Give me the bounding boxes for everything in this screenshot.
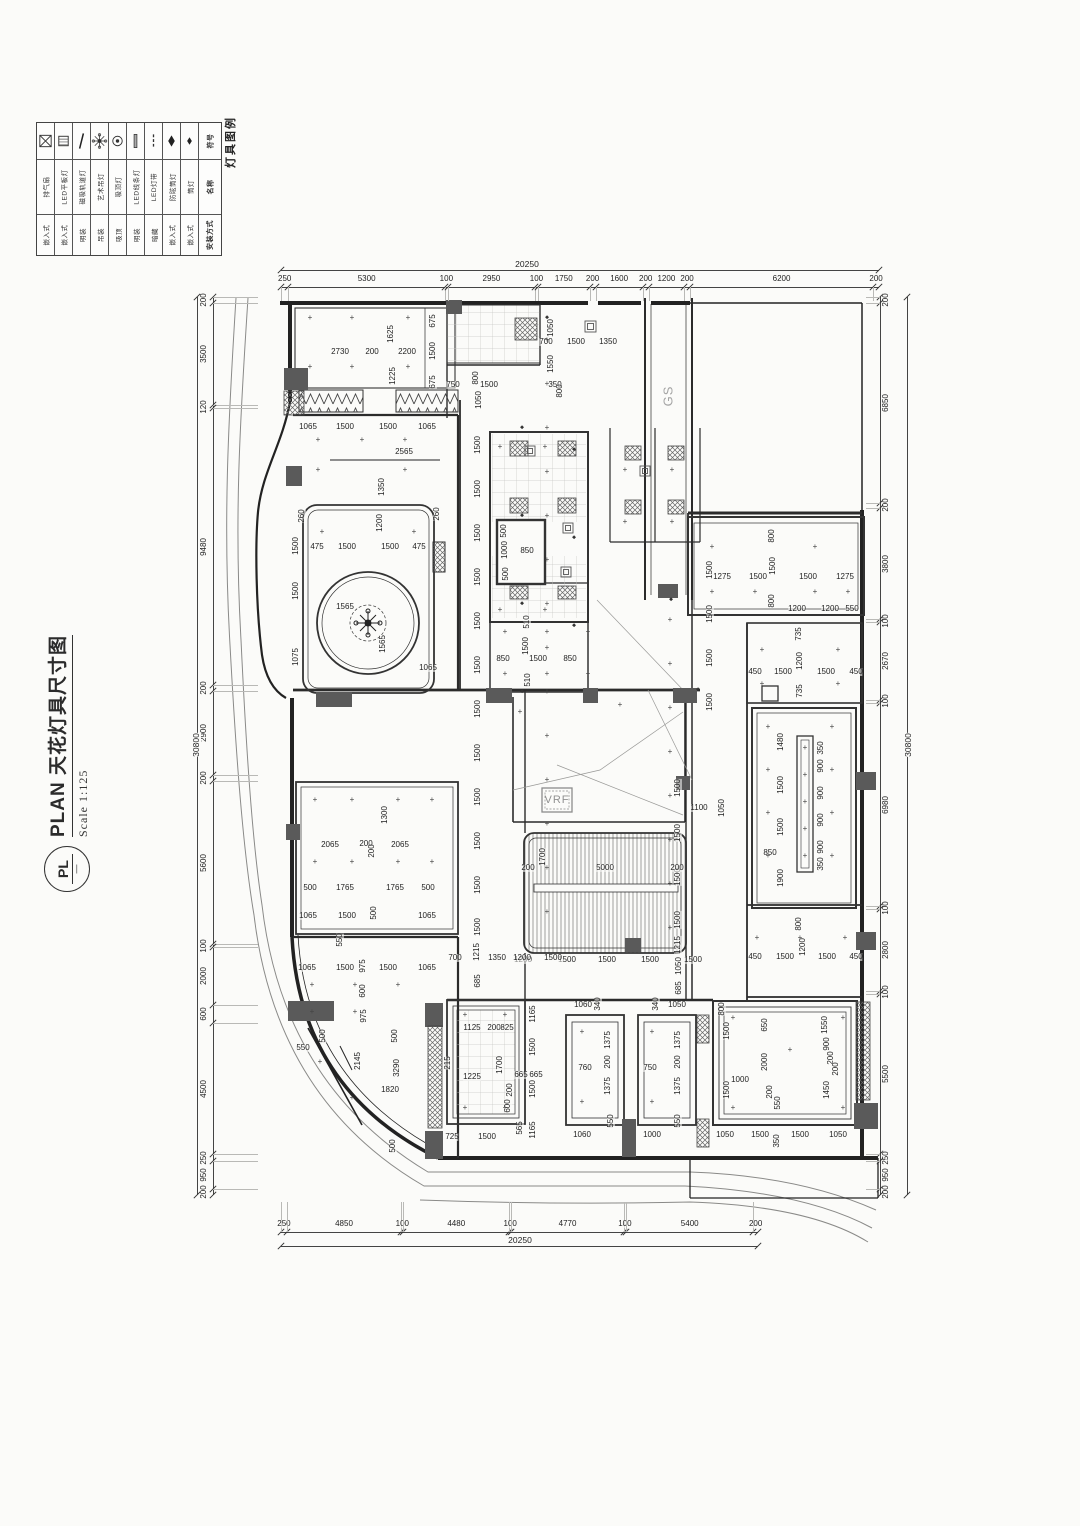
legend-item-name: 艺术吊灯 — [91, 160, 108, 215]
legend-item-install: 暗藏 — [145, 215, 162, 255]
drawing-sheet: 排气扇嵌入式LED平板灯嵌入式磁吸轨道灯明装艺术吊灯吊装吸顶灯吸顶LED线条灯明… — [0, 0, 1080, 1526]
legend-item-install: 吊装 — [91, 215, 108, 255]
title-block: PL — PLAN 天花灯具尺寸图 Scale 1:125 — [38, 624, 96, 892]
led-strip-icon — [145, 123, 162, 160]
structural-columns — [284, 300, 878, 1159]
ceiling-lamp-icon — [109, 123, 126, 160]
legend-item: LED平板灯嵌入式 — [55, 123, 73, 255]
downlight-icon — [181, 123, 198, 160]
exhaust-fan-icon — [37, 123, 54, 160]
room-outlines — [295, 305, 864, 1125]
legend-item: 防眩筒灯嵌入式 — [163, 123, 181, 255]
led-linear-light-icon — [127, 123, 144, 160]
legend-item-name: LED灯带 — [145, 160, 162, 215]
legend-item-install: 明装 — [127, 215, 144, 255]
led-panel-icon — [55, 123, 72, 160]
legend-item-install: 吸顶 — [109, 215, 126, 255]
legend-item-install: 嵌入式 — [55, 215, 72, 255]
legend-item-name: 排气扇 — [37, 160, 54, 215]
legend-item-name: 筒灯 — [181, 160, 198, 215]
legend-item: 排气扇嵌入式 — [37, 123, 55, 255]
legend-item: 艺术吊灯吊装 — [91, 123, 109, 255]
drawing-scale: Scale 1:125 — [76, 635, 91, 837]
louver-ceiling — [524, 833, 686, 953]
legend-item-name: 防眩筒灯 — [163, 160, 180, 215]
legend-title: 灯具图例 — [222, 116, 238, 168]
legend-item-name: 磁吸轨道灯 — [73, 160, 90, 215]
legend-item: 筒灯嵌入式 — [181, 123, 199, 255]
ceiling-join-lines — [513, 600, 692, 815]
legend-item-name: 吸顶灯 — [109, 160, 126, 215]
art-chandelier-symbol — [354, 609, 382, 637]
interior-walls — [293, 298, 862, 1158]
legend-item-name: LED线条灯 — [127, 160, 144, 215]
gs-label: GS — [661, 386, 676, 407]
legend-item-name: LED平板灯 — [55, 160, 72, 215]
legend-item: LED灯带暗藏 — [145, 123, 163, 255]
linear-light-fixtures — [308, 460, 440, 1125]
legend-item-install: 嵌入式 — [163, 215, 180, 255]
legend-item: LED线条灯明装 — [127, 123, 145, 255]
legend-header-column: 符号名称安装方式 — [199, 123, 221, 255]
plan-tag-dash: — — [73, 865, 79, 874]
legend-item-install: 嵌入式 — [37, 215, 54, 255]
art-chandelier-icon — [91, 123, 108, 160]
legend-item-install: 嵌入式 — [181, 215, 198, 255]
page-title: PLAN 天花灯具尺寸图 — [43, 635, 73, 837]
legend-item: 吸顶灯吸顶 — [109, 123, 127, 255]
legend-item: 磁吸轨道灯明装 — [73, 123, 91, 255]
legend-item-install: 明装 — [73, 215, 90, 255]
magnetic-track-light-icon — [73, 123, 90, 160]
vrf-label: VRF — [545, 794, 570, 806]
lighting-legend-table: 排气扇嵌入式LED平板灯嵌入式磁吸轨道灯明装艺术吊灯吊装吸顶灯吸顶LED线条灯明… — [36, 122, 222, 256]
plan-tag-circle: PL — — [44, 846, 90, 892]
antiglare-downlight-icon — [163, 123, 180, 160]
